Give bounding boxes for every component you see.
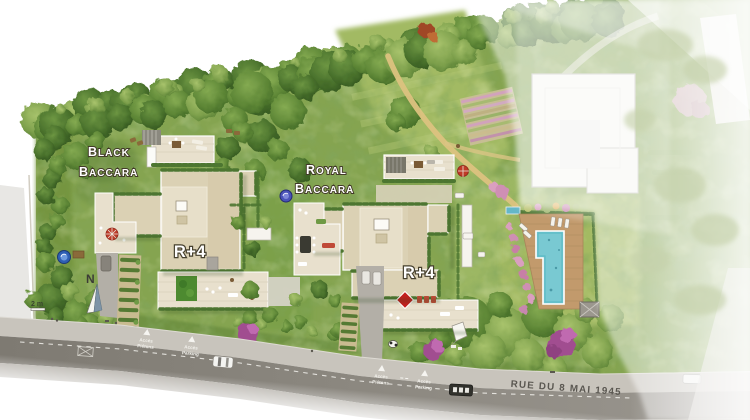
svg-text:N: N xyxy=(86,272,95,286)
svg-text:ROYAL: ROYAL xyxy=(306,163,347,177)
svg-text:R+4: R+4 xyxy=(403,264,436,282)
svg-text:BLACK: BLACK xyxy=(88,145,130,159)
svg-text:2 m: 2 m xyxy=(31,301,43,308)
svg-text:R+4: R+4 xyxy=(174,243,207,261)
svg-text:BACCARA: BACCARA xyxy=(295,182,354,196)
svg-text:BACCARA: BACCARA xyxy=(79,165,138,179)
